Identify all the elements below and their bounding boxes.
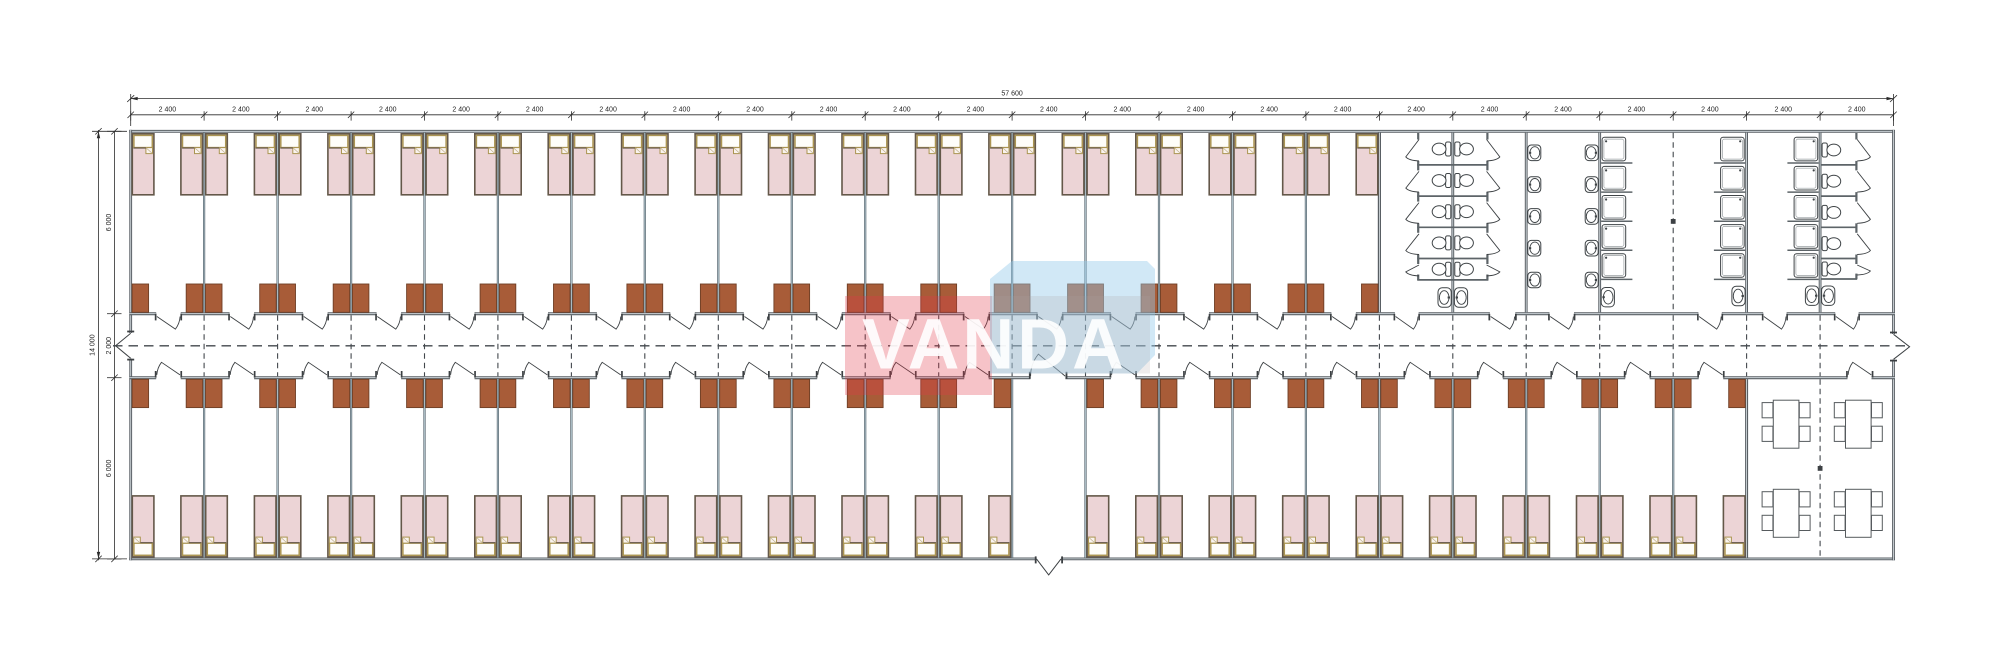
- svg-text:2 400: 2 400: [1848, 107, 1866, 114]
- svg-text:2 400: 2 400: [1628, 107, 1646, 114]
- svg-text:6 000: 6 000: [106, 459, 113, 477]
- svg-text:2 000: 2 000: [106, 337, 113, 355]
- svg-text:2 400: 2 400: [1187, 107, 1205, 114]
- svg-text:2 400: 2 400: [1040, 107, 1058, 114]
- svg-text:2 400: 2 400: [967, 107, 985, 114]
- svg-text:2 400: 2 400: [820, 107, 838, 114]
- svg-text:2 400: 2 400: [1114, 107, 1132, 114]
- svg-text:2 400: 2 400: [1701, 107, 1719, 114]
- svg-text:14 000: 14 000: [90, 334, 97, 356]
- svg-text:2 400: 2 400: [1260, 107, 1278, 114]
- svg-text:2 400: 2 400: [1775, 107, 1793, 114]
- svg-text:2 400: 2 400: [1554, 107, 1572, 114]
- svg-text:2 400: 2 400: [159, 107, 177, 114]
- svg-text:6 000: 6 000: [106, 214, 113, 232]
- svg-text:2 400: 2 400: [526, 107, 544, 114]
- svg-text:2 400: 2 400: [452, 107, 470, 114]
- svg-text:2 400: 2 400: [893, 107, 911, 114]
- svg-text:2 400: 2 400: [232, 107, 250, 114]
- svg-text:57 600: 57 600: [1001, 90, 1023, 97]
- svg-text:2 400: 2 400: [1334, 107, 1352, 114]
- svg-text:2 400: 2 400: [1407, 107, 1425, 114]
- svg-text:2 400: 2 400: [746, 107, 764, 114]
- svg-text:2 400: 2 400: [306, 107, 324, 114]
- svg-text:VANDA: VANDA: [862, 306, 1127, 385]
- svg-text:2 400: 2 400: [599, 107, 617, 114]
- svg-text:2 400: 2 400: [1481, 107, 1499, 114]
- svg-text:2 400: 2 400: [379, 107, 397, 114]
- svg-text:2 400: 2 400: [673, 107, 691, 114]
